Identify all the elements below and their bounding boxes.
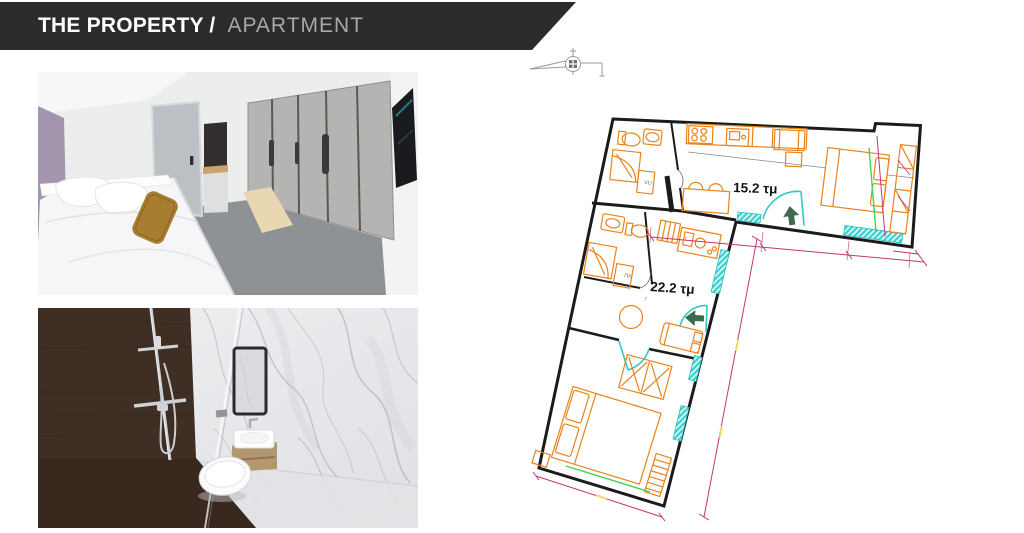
door-handle — [190, 156, 193, 165]
washer-label-1: VU — [644, 180, 652, 187]
page-subtitle: APARTMENT — [227, 14, 364, 38]
slide: THE PROPERTY / APARTMENT — [0, 0, 1024, 533]
bedroom-render — [38, 72, 418, 295]
area-label-apartment: 22.2 τμ — [650, 279, 695, 297]
bedroom-render-photo — [38, 72, 418, 295]
mirror — [234, 348, 266, 414]
bathroom-render-photo — [38, 308, 418, 528]
area-label-studio: 15.2 τμ — [733, 180, 778, 197]
bathroom-render — [38, 308, 418, 528]
header-bar: THE PROPERTY / APARTMENT — [0, 2, 576, 50]
floor-plan: 15.2 τμ 22.2 τμ VU ΠΛ ↑ ↑ — [515, 85, 945, 533]
page-title: THE PROPERTY / — [38, 14, 215, 38]
north-arrow-icon — [528, 40, 608, 80]
